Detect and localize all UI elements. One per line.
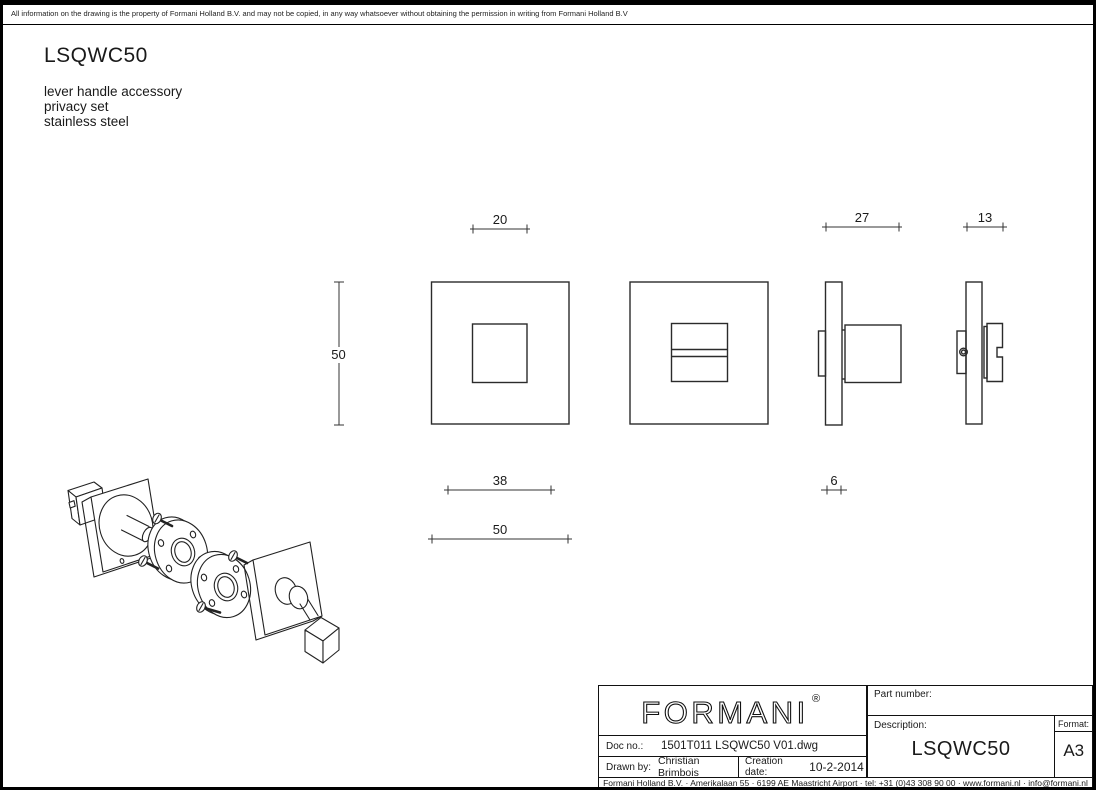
svg-text:50: 50 — [493, 522, 507, 537]
format-label: Format: — [1055, 716, 1093, 732]
drawn-by-value: Christian Brimbois — [658, 755, 738, 779]
dimension-6: 6 — [821, 473, 847, 495]
svg-text:13: 13 — [978, 210, 992, 225]
dimension-27: 27 — [822, 210, 902, 232]
svg-text:27: 27 — [855, 210, 869, 225]
front-view-release-side — [432, 282, 570, 424]
dimension-20: 20 — [470, 212, 530, 234]
front-view-privacy-side — [630, 282, 768, 424]
description-cell: Description: LSQWC50 — [867, 716, 1054, 777]
dimensions: 20 27 13 50 — [331, 210, 1007, 544]
formani-logo: FORMANI ® — [633, 689, 833, 733]
drawing-sheet: All information on the drawing is the pr… — [0, 0, 1096, 790]
side-view-privacy — [819, 282, 902, 425]
svg-text:38: 38 — [493, 473, 507, 488]
dimension-13: 13 — [963, 210, 1007, 232]
dimension-50-height: 50 — [331, 282, 345, 425]
doc-number-row: Doc no.: 1501T011 LSQWC50 V01.dwg — [599, 736, 867, 757]
svg-text:6: 6 — [830, 473, 837, 488]
exploded-view-illustration — [68, 479, 339, 663]
side-view-release — [957, 282, 1003, 424]
dimension-50-width: 50 — [428, 522, 572, 544]
svg-text:20: 20 — [493, 212, 507, 227]
technical-drawing-canvas: 20 27 13 50 — [0, 0, 1096, 790]
description-label: Description: — [874, 720, 927, 731]
creation-date-value: 10-2-2014 — [807, 760, 866, 774]
creation-date-label: Creation date: — [738, 757, 807, 777]
doc-no-label: Doc no.: — [599, 741, 661, 752]
format-value: A3 — [1055, 732, 1093, 761]
drawn-by-row: Drawn by: Christian Brimbois Creation da… — [599, 757, 867, 777]
formani-logo-text: FORMANI — [641, 695, 808, 730]
description-value: LSQWC50 — [868, 738, 1054, 761]
drawn-by-label: Drawn by: — [599, 762, 658, 773]
format-cell: Format: A3 — [1054, 716, 1093, 777]
part-number-label: Part number: — [874, 689, 932, 700]
title-block: FORMANI ® Doc no.: 1501T011 LSQWC50 V01.… — [598, 685, 1093, 790]
dimension-38: 38 — [444, 473, 555, 495]
orthographic-views — [432, 282, 1003, 425]
company-footer: Formani Holland B.V. · Amerikalaan 55 · … — [599, 777, 1092, 789]
svg-text:50: 50 — [331, 347, 345, 362]
logo-cell: FORMANI ® — [599, 686, 867, 736]
registered-trademark-icon: ® — [811, 693, 819, 705]
doc-no-value: 1501T011 LSQWC50 V01.dwg — [661, 740, 818, 752]
part-number-cell: Part number: — [867, 686, 1093, 716]
